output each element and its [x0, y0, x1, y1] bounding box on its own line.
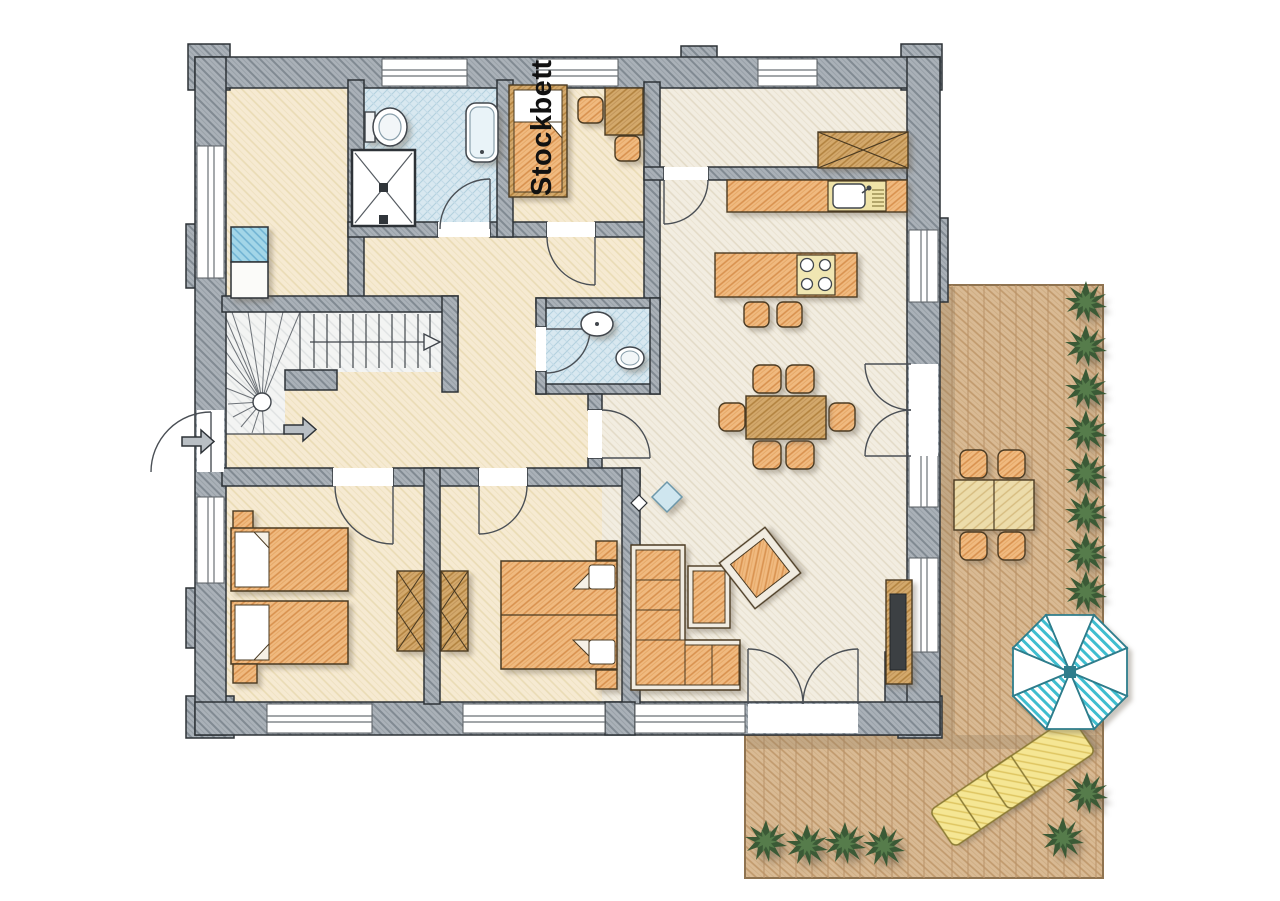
door-opening	[438, 222, 490, 237]
dining-chair	[753, 441, 781, 469]
window	[909, 230, 938, 302]
terrace-door-opening	[909, 364, 938, 456]
dryer	[231, 262, 268, 298]
dining-chair	[786, 441, 814, 469]
outdoor-chair	[960, 450, 987, 478]
wc-sink	[581, 312, 613, 336]
bar-stool	[744, 302, 769, 327]
window	[197, 146, 224, 278]
wardrobe-cabinet	[397, 571, 424, 651]
bar-stool	[777, 302, 802, 327]
wc-wall	[536, 384, 660, 394]
window	[197, 497, 224, 583]
window	[382, 59, 467, 86]
interior-wall	[644, 167, 664, 180]
shower-drain	[379, 183, 388, 192]
double-bed	[501, 561, 617, 669]
burner	[819, 278, 832, 291]
wc-wall	[536, 298, 660, 308]
wall-pier	[605, 702, 635, 735]
window	[463, 704, 605, 733]
kitchen-island	[715, 253, 857, 297]
interior-wall	[588, 394, 602, 410]
storage-room	[231, 227, 268, 298]
interior-wall	[644, 82, 660, 304]
dining-chair	[786, 365, 814, 393]
door-opening	[479, 468, 527, 486]
wc-wall	[650, 298, 660, 394]
dining-chair	[719, 403, 745, 431]
nightstand	[233, 511, 253, 529]
desk	[605, 88, 643, 135]
floor-plan: Stockbett	[0, 0, 1280, 901]
pillow	[589, 640, 615, 664]
burner	[801, 259, 814, 272]
bunk-bed-label: Stockbett	[526, 59, 558, 196]
single-bed	[231, 601, 348, 664]
outdoor-chair	[960, 532, 987, 560]
dining-chair	[829, 403, 855, 431]
shower-cabin	[352, 150, 415, 226]
tv-icon	[890, 594, 906, 670]
bedroom-divider-wall	[424, 468, 440, 704]
burner	[820, 260, 831, 271]
floor-plan-drawing: Stockbett	[0, 0, 1280, 901]
shower-head-icon	[379, 215, 388, 224]
terrace-door-opening	[748, 704, 858, 733]
building-shadow-on-deck	[940, 287, 955, 735]
kitchen-counter	[727, 180, 907, 212]
washing-machine	[231, 227, 268, 262]
stair-wall	[285, 370, 337, 390]
window	[909, 558, 938, 652]
window	[909, 453, 938, 507]
burner	[802, 279, 813, 290]
door-opening	[547, 222, 595, 237]
dining-table	[746, 396, 826, 439]
wc-toilet	[616, 347, 644, 369]
outdoor-chair	[998, 532, 1025, 560]
chair	[615, 136, 640, 161]
toilet	[365, 108, 407, 146]
window	[267, 704, 372, 733]
door-opening	[536, 327, 546, 371]
sink-basin	[833, 184, 865, 208]
nightstand	[596, 541, 617, 560]
door-opening	[664, 167, 708, 180]
nightstand	[596, 670, 617, 689]
window	[635, 704, 745, 733]
wardrobe-cabinet	[441, 571, 468, 651]
interior-wall	[222, 468, 333, 486]
door-opening	[333, 468, 393, 486]
tall-cabinet	[818, 132, 908, 168]
interior-wall	[708, 167, 907, 180]
tv-sideboard	[886, 580, 912, 684]
door-opening	[588, 410, 602, 458]
pillow	[589, 565, 615, 589]
stair-wall	[442, 296, 458, 392]
wc-wall	[536, 298, 546, 327]
outdoor-chair	[998, 450, 1025, 478]
single-bed	[231, 528, 348, 591]
bathtub	[466, 103, 498, 162]
dining-chair	[753, 365, 781, 393]
window	[758, 59, 817, 86]
parasol-pole	[1064, 666, 1076, 678]
parasol	[1013, 615, 1127, 729]
coffee-table	[688, 566, 730, 628]
nightstand	[233, 664, 257, 683]
stair-newel-post	[253, 393, 271, 411]
chair	[578, 97, 603, 123]
floor-stairwell	[226, 310, 442, 372]
wc-wall	[536, 371, 546, 394]
